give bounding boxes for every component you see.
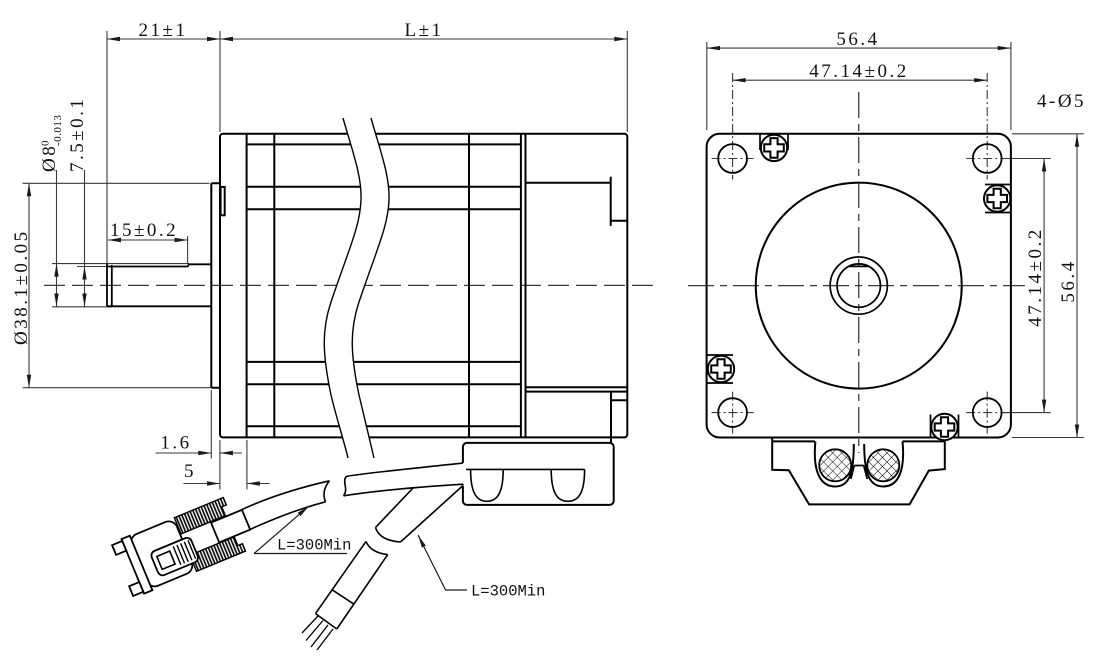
- svg-text:7.5±0.1: 7.5±0.1: [67, 97, 88, 172]
- svg-text:L±1: L±1: [404, 20, 443, 41]
- svg-text:56.4: 56.4: [836, 29, 879, 50]
- svg-text:1.6: 1.6: [160, 433, 191, 454]
- svg-text:L=300Min: L=300Min: [471, 583, 545, 601]
- svg-text:47.14±0.2: 47.14±0.2: [809, 61, 908, 82]
- svg-text:L=300Min: L=300Min: [277, 537, 351, 555]
- svg-text:Ø38.1±0.05: Ø38.1±0.05: [11, 229, 32, 345]
- svg-text:Ø80-0.013: Ø80-0.013: [39, 115, 64, 172]
- svg-text:5: 5: [184, 461, 196, 482]
- svg-text:15±0.2: 15±0.2: [110, 220, 178, 241]
- svg-text:47.14±0.2: 47.14±0.2: [1025, 227, 1046, 326]
- svg-text:21±1: 21±1: [139, 20, 188, 41]
- svg-text:56.4: 56.4: [1058, 259, 1079, 302]
- svg-text:4-Ø5: 4-Ø5: [1037, 91, 1086, 112]
